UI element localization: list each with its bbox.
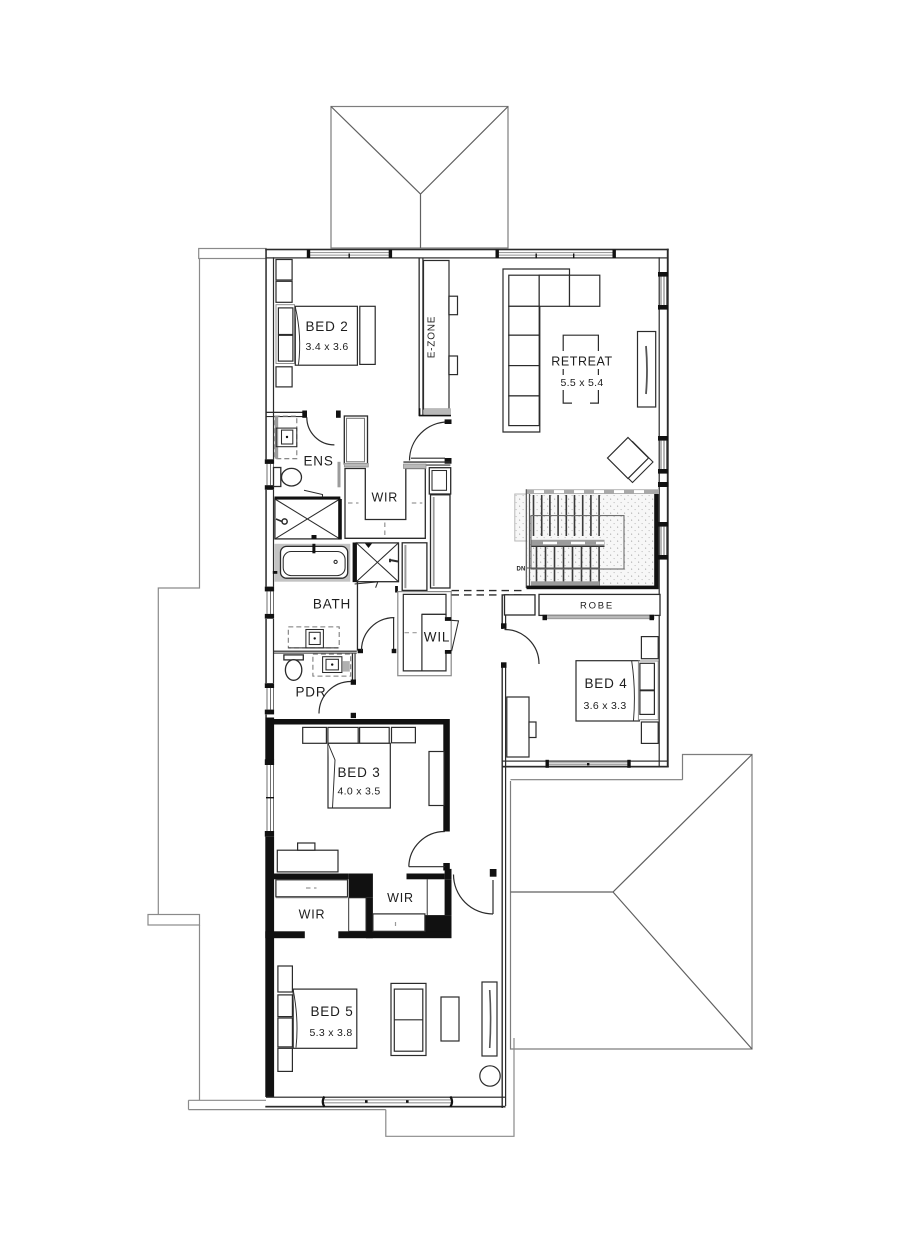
svg-text:3.4 x 3.6: 3.4 x 3.6 bbox=[306, 341, 349, 353]
svg-text:DN: DN bbox=[517, 567, 526, 573]
svg-text:BATH: BATH bbox=[313, 597, 351, 612]
svg-text:ROBE: ROBE bbox=[580, 601, 614, 612]
svg-text:3.6 x 3.3: 3.6 x 3.3 bbox=[584, 700, 627, 712]
svg-text:4.0 x 3.5: 4.0 x 3.5 bbox=[338, 786, 381, 798]
svg-text:5.5 x 5.4: 5.5 x 5.4 bbox=[561, 377, 604, 389]
svg-text:WIL: WIL bbox=[424, 630, 450, 645]
svg-text:WIR: WIR bbox=[387, 891, 414, 905]
svg-text:BED 5: BED 5 bbox=[310, 1004, 353, 1019]
svg-text:RETREAT: RETREAT bbox=[551, 355, 613, 369]
svg-text:WIR: WIR bbox=[371, 491, 398, 505]
svg-text:BED 3: BED 3 bbox=[337, 765, 380, 780]
svg-text:5.3 x 3.8: 5.3 x 3.8 bbox=[310, 1027, 353, 1039]
svg-text:E-ZONE: E-ZONE bbox=[427, 316, 438, 359]
svg-text:ENS: ENS bbox=[304, 454, 334, 469]
svg-text:BED 2: BED 2 bbox=[305, 319, 348, 334]
svg-text:WIR: WIR bbox=[299, 908, 326, 922]
svg-text:BED 4: BED 4 bbox=[584, 676, 627, 691]
svg-text:PDR: PDR bbox=[296, 685, 327, 700]
